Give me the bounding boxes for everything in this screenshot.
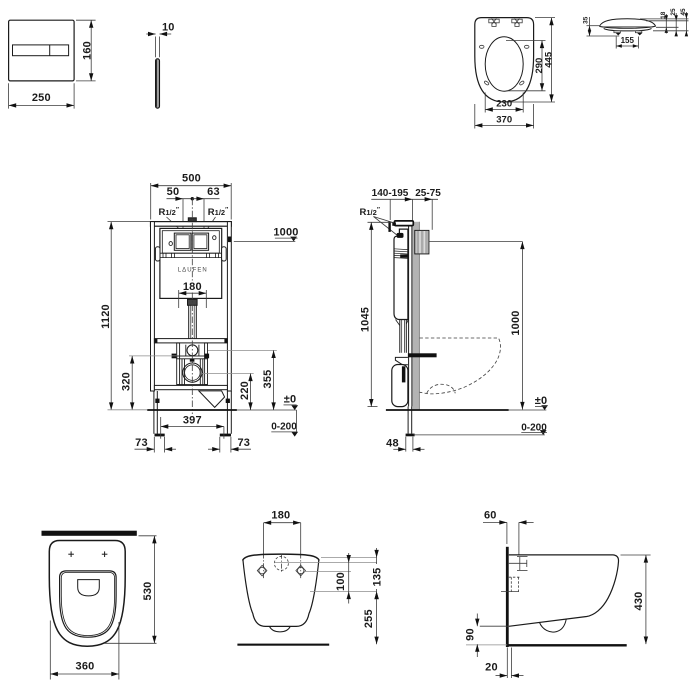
svg-text:±0: ±0 bbox=[284, 394, 297, 406]
svg-text:397: 397 bbox=[183, 414, 202, 426]
svg-text:180: 180 bbox=[271, 509, 290, 521]
svg-text:255: 255 bbox=[363, 609, 375, 628]
svg-text:20: 20 bbox=[485, 661, 498, 673]
svg-text:220: 220 bbox=[239, 381, 251, 400]
svg-text:355: 355 bbox=[262, 370, 274, 389]
svg-text:370: 370 bbox=[496, 114, 512, 125]
svg-text:1000: 1000 bbox=[273, 227, 298, 239]
svg-text:90: 90 bbox=[464, 628, 476, 641]
svg-text:1045: 1045 bbox=[360, 307, 372, 332]
svg-text:155: 155 bbox=[621, 36, 635, 45]
svg-text:180: 180 bbox=[183, 281, 202, 293]
svg-text:25: 25 bbox=[670, 8, 677, 16]
svg-text:50: 50 bbox=[167, 186, 180, 198]
svg-text:R1/2″: R1/2″ bbox=[360, 207, 380, 218]
svg-text:230: 230 bbox=[496, 99, 512, 110]
svg-text:1000: 1000 bbox=[510, 310, 522, 335]
svg-text:63: 63 bbox=[207, 186, 220, 198]
svg-text:1120: 1120 bbox=[100, 304, 112, 329]
svg-text:60: 60 bbox=[484, 509, 497, 521]
svg-text:135: 135 bbox=[371, 568, 383, 587]
svg-text:35: 35 bbox=[582, 16, 589, 24]
svg-text:250: 250 bbox=[32, 92, 51, 104]
svg-text:R1/2″: R1/2″ bbox=[208, 207, 228, 218]
svg-text:73: 73 bbox=[237, 437, 250, 449]
svg-text:445: 445 bbox=[544, 51, 555, 68]
svg-text:±0: ±0 bbox=[535, 395, 548, 407]
svg-text:0-200: 0-200 bbox=[271, 422, 297, 433]
svg-text:100: 100 bbox=[335, 572, 347, 591]
svg-text:10: 10 bbox=[162, 21, 175, 33]
svg-text:LΔUFEN: LΔUFEN bbox=[178, 268, 208, 274]
svg-text:140-195: 140-195 bbox=[372, 188, 409, 199]
svg-text:73: 73 bbox=[135, 437, 148, 449]
svg-text:320: 320 bbox=[121, 372, 133, 391]
svg-text:360: 360 bbox=[76, 661, 95, 673]
svg-text:0-200: 0-200 bbox=[521, 422, 547, 433]
svg-text:25-75: 25-75 bbox=[415, 188, 441, 199]
svg-text:430: 430 bbox=[633, 592, 645, 611]
svg-text:160: 160 bbox=[82, 41, 94, 60]
svg-text:500: 500 bbox=[182, 173, 201, 185]
svg-text:45: 45 bbox=[680, 8, 687, 16]
svg-text:530: 530 bbox=[142, 582, 154, 601]
svg-text:48: 48 bbox=[386, 438, 399, 450]
svg-text:R1/2″: R1/2″ bbox=[159, 207, 179, 218]
svg-text:18: 18 bbox=[660, 11, 667, 19]
